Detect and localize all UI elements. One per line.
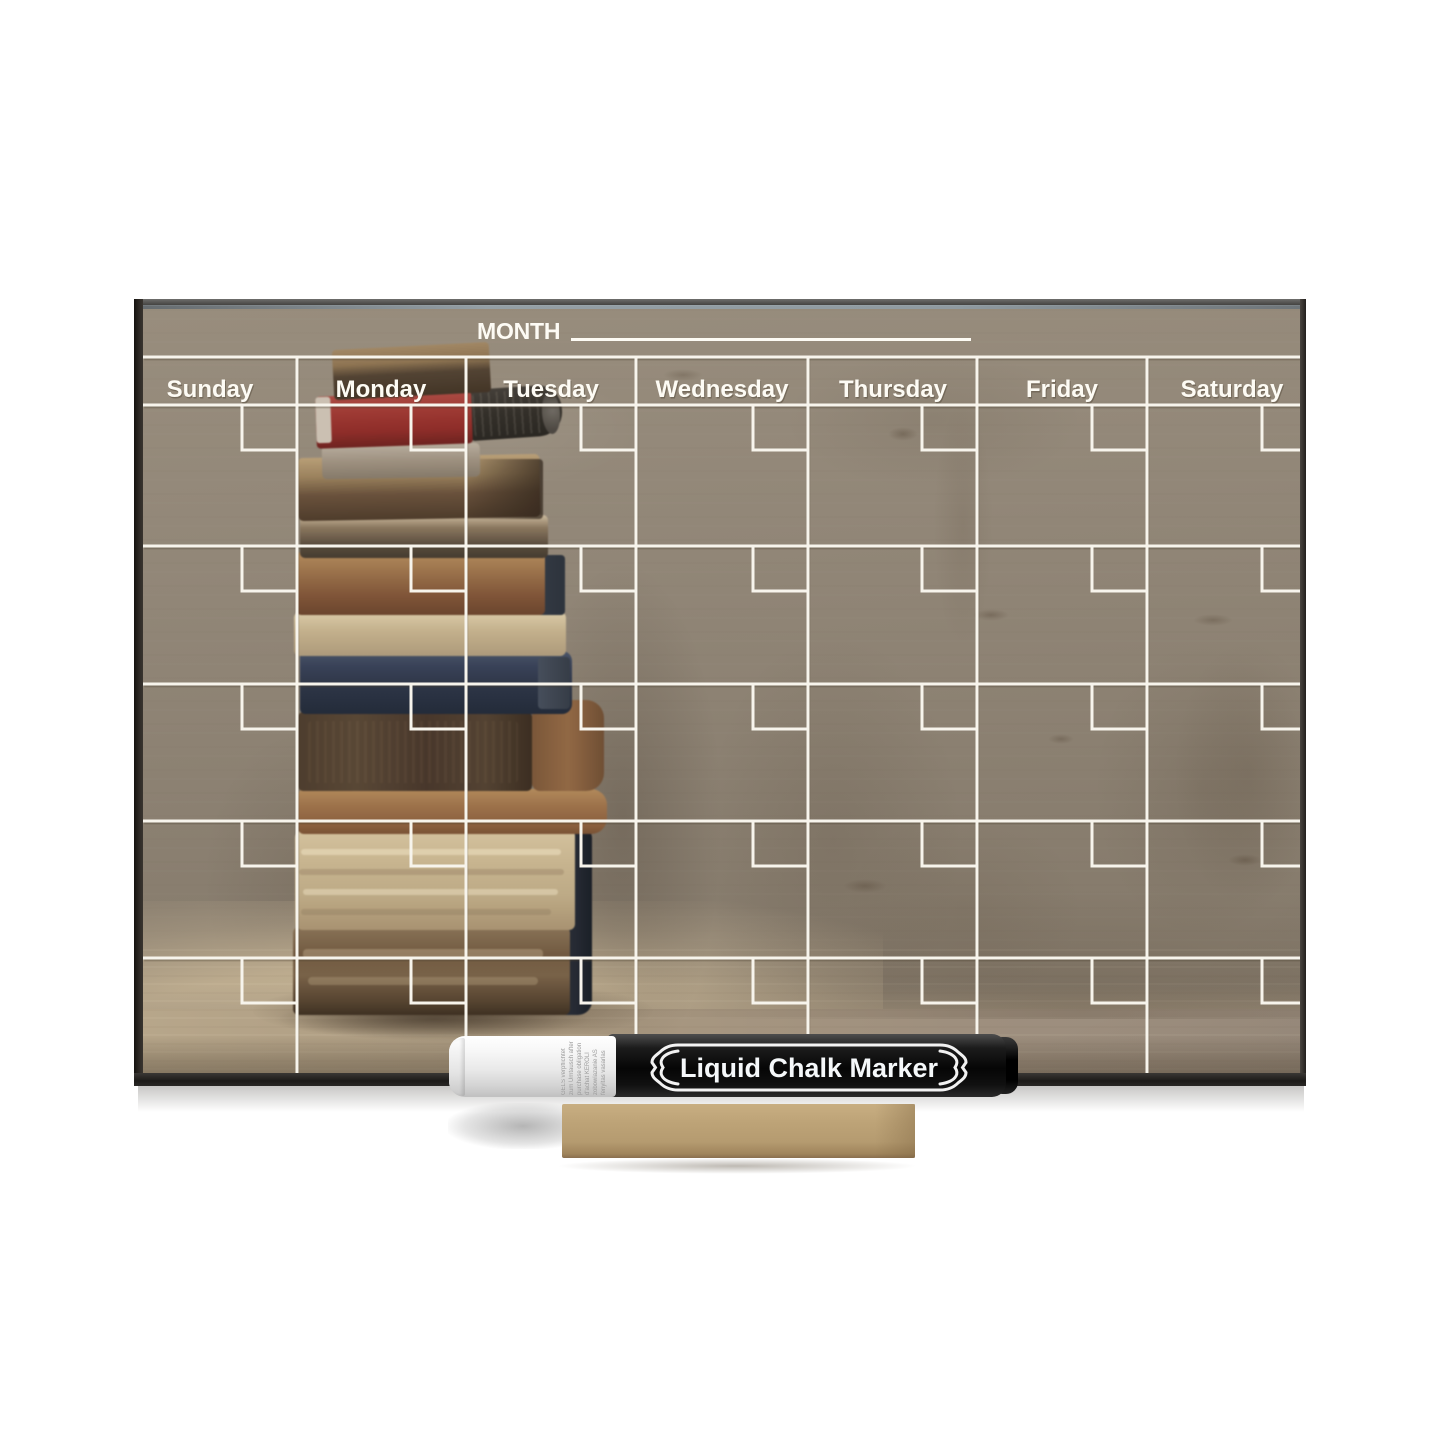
svg-text:Tuesday: Tuesday <box>503 376 599 403</box>
svg-text:MONTH: MONTH <box>477 318 560 344</box>
svg-text:Liquid Chalk Marker: Liquid Chalk Marker <box>680 1053 939 1083</box>
svg-text:Friday: Friday <box>1026 376 1099 403</box>
svg-text:Monday: Monday <box>336 376 427 403</box>
svg-text:Saturday: Saturday <box>1181 376 1284 403</box>
svg-text:Sunday: Sunday <box>167 376 254 403</box>
svg-text:Wednesday: Wednesday <box>656 376 790 403</box>
svg-text:Thursday: Thursday <box>839 376 948 403</box>
